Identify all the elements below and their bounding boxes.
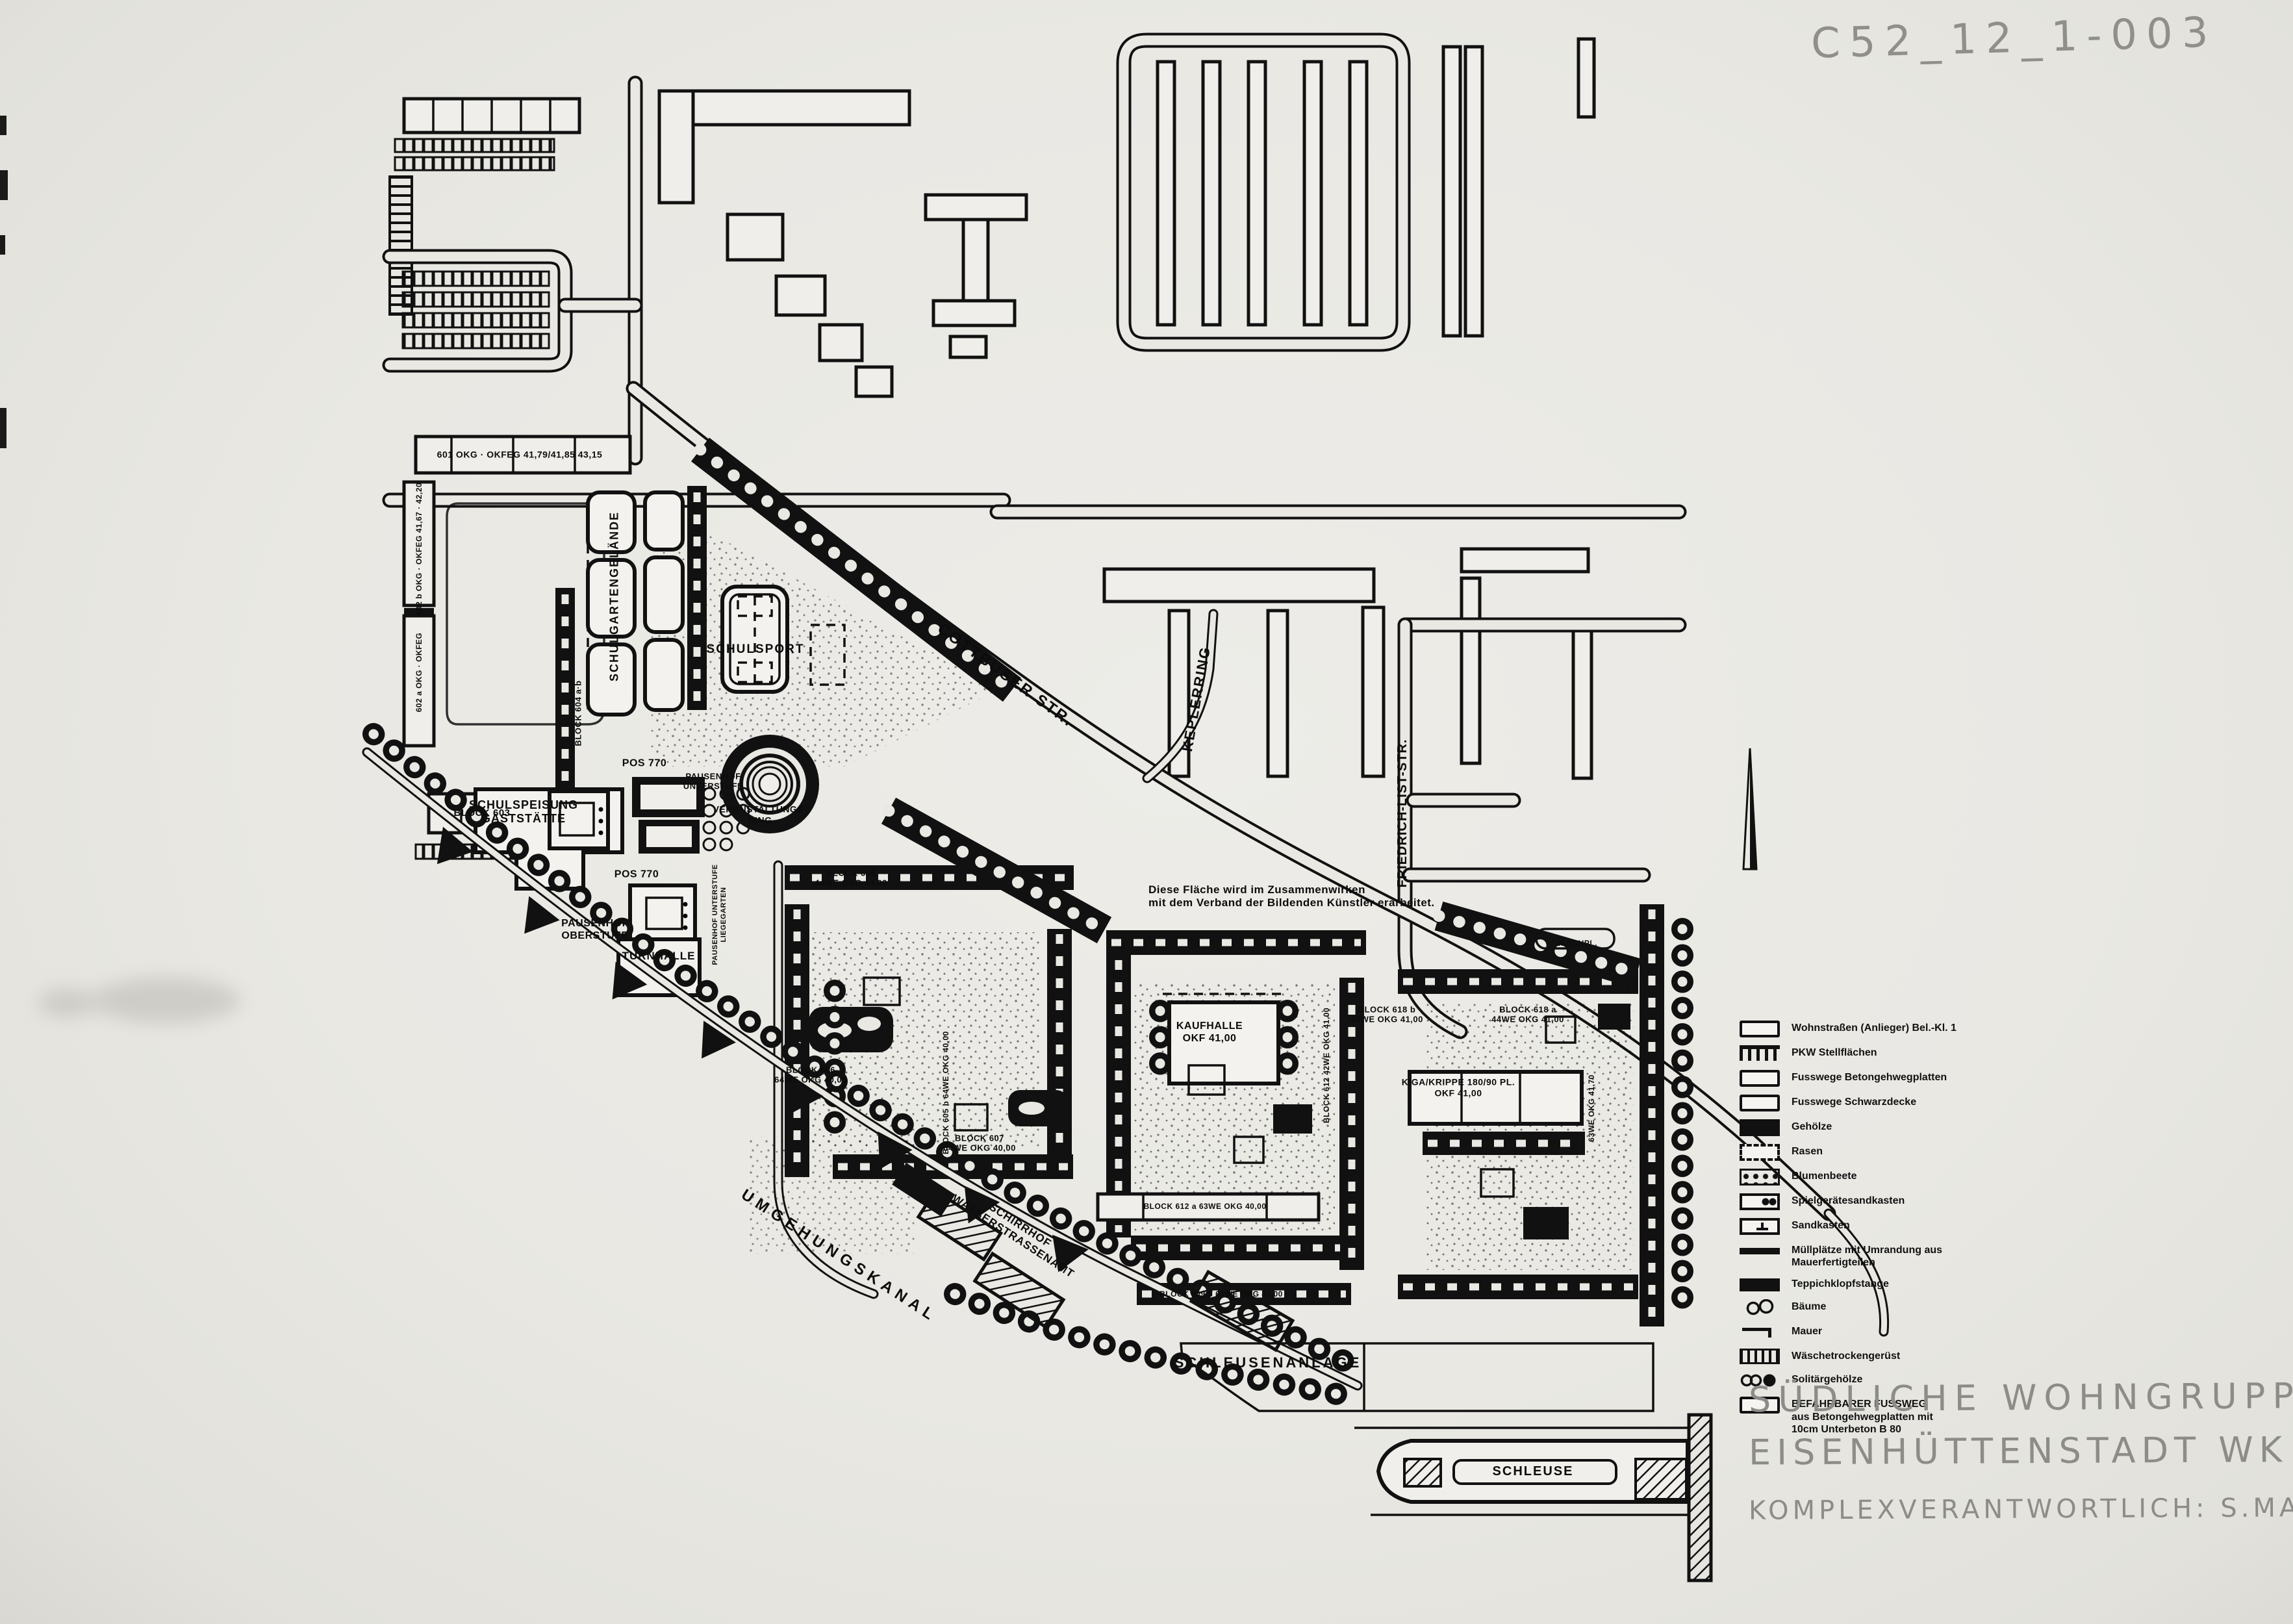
scanned-site-plan: COTTBUSER STR.KEPLERRINGFRIEDRICH-LIST-S… — [0, 0, 2293, 1624]
legend-teppich-icon — [1740, 1278, 1780, 1291]
legend-mauer-icon — [1740, 1324, 1780, 1341]
legend-item-label: Bäume — [1792, 1299, 1826, 1313]
legend-item: Müllplätze mit Umrandung aus Mauerfertig… — [1740, 1242, 2032, 1269]
legend-waesche-icon — [1740, 1349, 1780, 1364]
school-area — [404, 437, 1012, 995]
title-responsible: KOMPLEXVERANTWORTLICH: S.MACIASZEK — [1749, 1492, 2293, 1526]
pencil-smudge — [91, 978, 240, 1023]
legend-rasen-icon — [1740, 1144, 1780, 1161]
scan-edge-mark — [0, 170, 8, 200]
legend-item-label: Gehölze — [1792, 1119, 1832, 1133]
pencil-smudge — [38, 989, 96, 1017]
legend-item: Wäschetrockengerüst — [1740, 1348, 2032, 1364]
scan-edge-mark — [0, 408, 6, 448]
legend-item: Blumenbeete — [1740, 1168, 2032, 1186]
north-arrow-icon — [1743, 748, 1756, 869]
legend-item: Gehölze — [1740, 1119, 2032, 1136]
legend-item-label: Fusswege Betongehwegplatten — [1792, 1069, 1947, 1084]
legend-pkw-icon — [1740, 1045, 1780, 1062]
scan-edge-mark — [0, 116, 6, 135]
legend-item-label: PKW Stellflächen — [1792, 1045, 1877, 1059]
legend-item: Fusswege Schwarzdecke — [1740, 1094, 2032, 1111]
legend-geh-icon — [1740, 1119, 1780, 1136]
scan-edge-mark — [0, 235, 5, 255]
legend-item-label: Fusswege Schwarzdecke — [1792, 1094, 1916, 1108]
legend-item: Teppichklopfstange — [1740, 1276, 2032, 1291]
legend-baeume-icon — [1740, 1299, 1780, 1316]
legend-item: PKW Stellflächen — [1740, 1045, 2032, 1062]
legend-item: Bäume — [1740, 1299, 2032, 1316]
legend-sand-icon — [1740, 1218, 1780, 1235]
legend-item: Spielgerätesandkasten — [1740, 1193, 2032, 1210]
legend-item-label: Wäschetrockengerüst — [1792, 1348, 1900, 1362]
legend-item-label: Spielgerätesandkasten — [1792, 1193, 1905, 1207]
legend-item-label: Müllplätze mit Umrandung aus Mauerfertig… — [1792, 1242, 1942, 1269]
title-location: EISENHÜTTENSTADT WK VI — [1749, 1429, 2293, 1473]
legend-item-label: Wohnstraßen (Anlieger) Bel.-Kl. 1 — [1792, 1020, 1957, 1034]
legend-muell-icon — [1740, 1248, 1780, 1254]
legend-item-label: Sandkasten — [1792, 1217, 1850, 1232]
legend-item-label: Rasen — [1792, 1143, 1823, 1158]
legend-item: Mauer — [1740, 1323, 2032, 1341]
legend-road-icon — [1740, 1021, 1780, 1037]
legend-fw2-icon — [1740, 1095, 1780, 1111]
legend-item: Rasen — [1740, 1143, 2032, 1161]
legend-item: Wohnstraßen (Anlieger) Bel.-Kl. 1 — [1740, 1020, 2032, 1037]
legend-item-label: Blumenbeete — [1792, 1168, 1856, 1182]
legend-spiel-icon — [1740, 1193, 1780, 1210]
legend-item: Fusswege Betongehwegplatten — [1740, 1069, 2032, 1087]
legend-item-label: Mauer — [1792, 1323, 1822, 1338]
legend-fw1-icon — [1740, 1070, 1780, 1087]
legend-item: Sandkasten — [1740, 1217, 2032, 1235]
legend-item-label: Teppichklopfstange — [1792, 1276, 1889, 1290]
legend-blumen-icon — [1740, 1169, 1780, 1186]
title-project: SÜDLICHE WOHNGRUPPE — [1749, 1375, 2293, 1420]
